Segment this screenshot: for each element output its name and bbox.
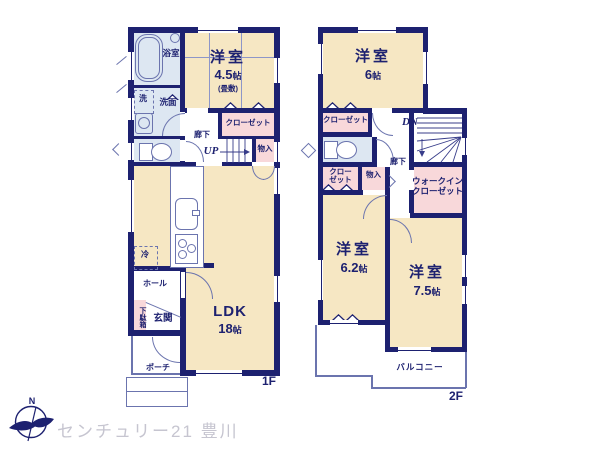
window	[423, 52, 428, 84]
hallway-2f-label: 廊下	[386, 158, 410, 167]
stairs-arrow-head	[419, 151, 425, 157]
fridge-label: 冷	[134, 251, 156, 260]
room-bedroom45-note: (畳敷)	[196, 85, 260, 93]
brand-logo-text: センチュリー21 豊川	[57, 417, 239, 442]
vent-marker	[116, 84, 127, 93]
window	[274, 58, 280, 83]
window	[128, 143, 134, 160]
floorplan-canvas: 浴室 洗 洗面 洋室 4.5帖 (畳敷) クローゼット 廊下 UP 物入 LDK…	[0, 0, 600, 450]
stairs-down	[417, 113, 462, 162]
burner	[178, 250, 187, 259]
window	[358, 27, 396, 33]
stairs-arrow-head	[244, 149, 250, 155]
hallway-1f-label: 廊下	[189, 131, 215, 140]
balcony-label: バルコニー	[390, 363, 450, 373]
kitchen-counter	[170, 166, 204, 268]
compass-north-label: N	[26, 396, 38, 406]
wic-label: ウォークインクローゼット	[411, 177, 464, 196]
washbasin	[135, 113, 153, 134]
closet-1f-label: クローゼット	[222, 119, 274, 127]
door-opening	[180, 140, 185, 161]
stove	[175, 234, 198, 264]
shutter-marker	[112, 143, 125, 156]
floor1-label: 1F	[256, 375, 282, 388]
window	[398, 347, 431, 352]
window	[196, 370, 242, 376]
window	[318, 44, 323, 74]
shoebox-label: 下駄箱	[133, 302, 146, 333]
room-bedroom75-size: 7.5帖	[395, 284, 459, 299]
balcony-railing	[315, 325, 317, 376]
room-bedroom62-size: 6.2帖	[322, 261, 386, 276]
vent-marker	[116, 56, 127, 65]
stairs-up-label: UP	[200, 145, 222, 157]
porch-label: ポーチ	[139, 364, 177, 373]
storage-2f-label: 物入	[362, 171, 385, 179]
window	[274, 276, 280, 302]
stairs-down-label: DN	[398, 116, 422, 128]
room-bedroom75-label: 洋室	[395, 265, 459, 282]
room-bath-label: 浴室	[153, 49, 189, 59]
wall	[133, 85, 180, 88]
storage-1f-label: 物入	[253, 145, 277, 153]
window	[462, 255, 467, 277]
room-bedroom6-size: 6帖	[341, 68, 405, 83]
wall	[133, 136, 180, 139]
window	[198, 27, 238, 33]
bath-sink	[170, 33, 180, 43]
porch-outline	[131, 336, 133, 374]
balcony-railing	[315, 375, 372, 377]
door-opening	[363, 190, 385, 195]
window	[128, 180, 134, 232]
window	[274, 168, 280, 194]
washbasin-bowl	[138, 117, 150, 129]
entrance-label: 玄関	[148, 314, 178, 325]
porch-outline	[131, 373, 180, 375]
closet2f-b-label: クローゼット	[323, 168, 358, 185]
floor2-label: 2F	[443, 390, 469, 403]
room-bedroom62-label: 洋室	[322, 242, 386, 259]
closet2f-a-label: クローゼット	[323, 116, 368, 124]
door-opening	[390, 213, 410, 218]
window	[462, 138, 467, 155]
window	[462, 286, 467, 304]
room-bedroom45-size: 4.5帖	[196, 68, 260, 83]
kitchen-faucet	[192, 210, 200, 216]
door-opening	[187, 108, 208, 113]
room-bedroom45-label: 洋室	[196, 50, 260, 67]
room-ldk-label: LDK	[202, 304, 258, 321]
room-ldk-size: 18帖	[202, 322, 258, 337]
high-window-marker	[301, 143, 317, 159]
toilet-bowl	[151, 143, 172, 161]
door-opening	[181, 272, 185, 298]
wall	[409, 162, 467, 167]
wall	[323, 132, 368, 137]
burner	[178, 239, 187, 248]
room-bedroom6-label: 洋室	[341, 49, 405, 66]
balcony-railing	[465, 352, 467, 388]
hall-label: ホール	[138, 280, 172, 289]
entry-step	[126, 391, 188, 407]
toilet-bowl	[336, 141, 357, 159]
burner	[187, 244, 196, 253]
window	[128, 52, 134, 80]
door-arc	[372, 113, 393, 136]
stairs-up	[218, 139, 252, 163]
room-washroom-label: 洗面	[150, 98, 186, 108]
window	[330, 320, 358, 325]
